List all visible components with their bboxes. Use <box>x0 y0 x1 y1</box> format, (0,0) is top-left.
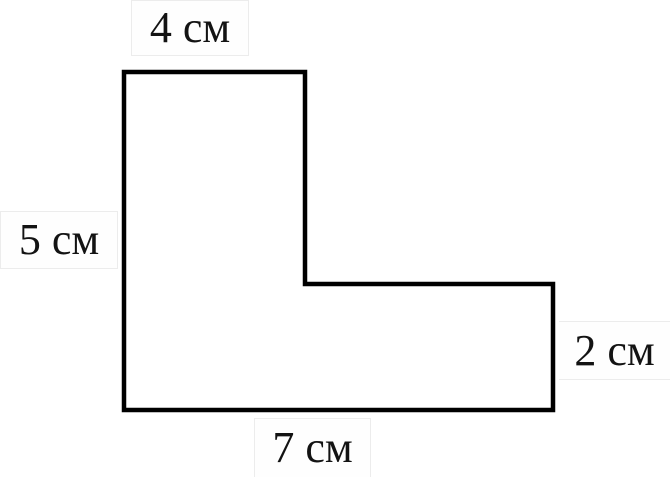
dimension-label-left: 5 см <box>0 211 118 269</box>
dimension-label-right: 2 см <box>559 321 670 380</box>
dimension-label-bottom: 7 см <box>254 418 371 477</box>
geometry-figure: 4 см 5 см 2 см 7 см <box>0 0 670 477</box>
dimension-label-left-text: 5 см <box>19 218 99 262</box>
dimension-label-top-text: 4 см <box>150 6 230 50</box>
dimension-label-bottom-text: 7 см <box>272 426 352 470</box>
dimension-label-right-text: 2 см <box>574 329 654 373</box>
dimension-label-top: 4 см <box>131 0 249 56</box>
l-shape-outline <box>124 72 553 410</box>
